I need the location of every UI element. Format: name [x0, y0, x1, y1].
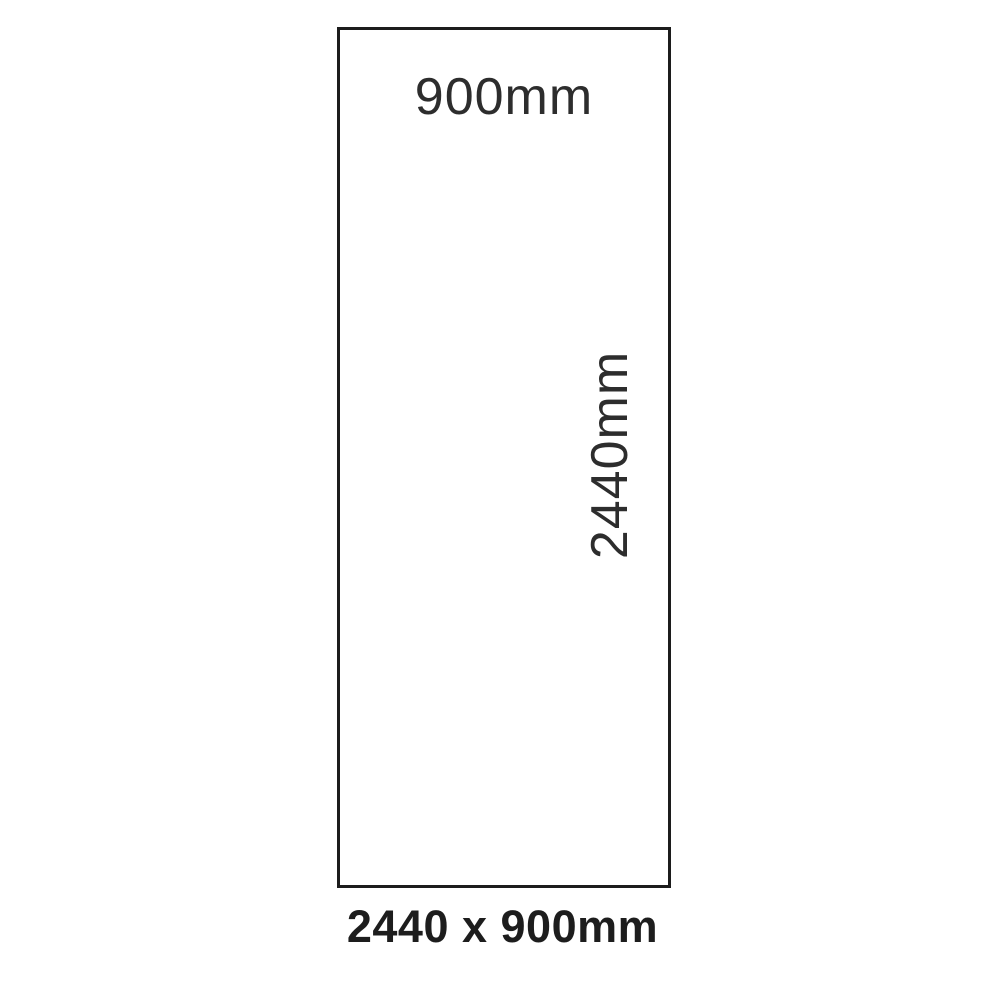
overall-dimensions-caption: 2440 x 900mm	[0, 904, 1005, 949]
panel-outline-rectangle: 900mm 2440mm	[337, 27, 671, 888]
width-dimension-label: 900mm	[340, 71, 668, 123]
panel-dimension-diagram: 900mm 2440mm 2440 x 900mm	[0, 0, 1005, 1005]
height-dimension-label: 2440mm	[584, 351, 636, 559]
